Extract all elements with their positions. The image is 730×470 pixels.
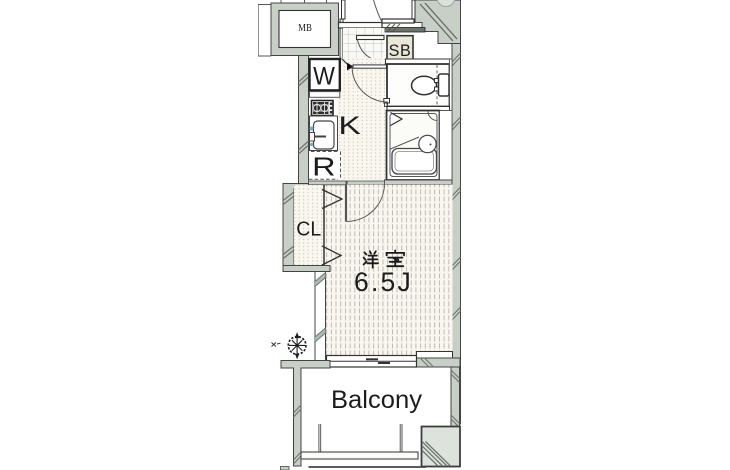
svg-text:K: K [338,112,361,140]
svg-text:R: R [312,153,335,182]
svg-text:SB: SB [389,42,412,60]
svg-text:Balcony: Balcony [331,386,422,414]
svg-text:6.5J: 6.5J [354,267,413,297]
svg-text:MB: MB [298,23,312,34]
svg-text:CL: CL [296,219,321,241]
svg-text:W: W [313,63,335,91]
